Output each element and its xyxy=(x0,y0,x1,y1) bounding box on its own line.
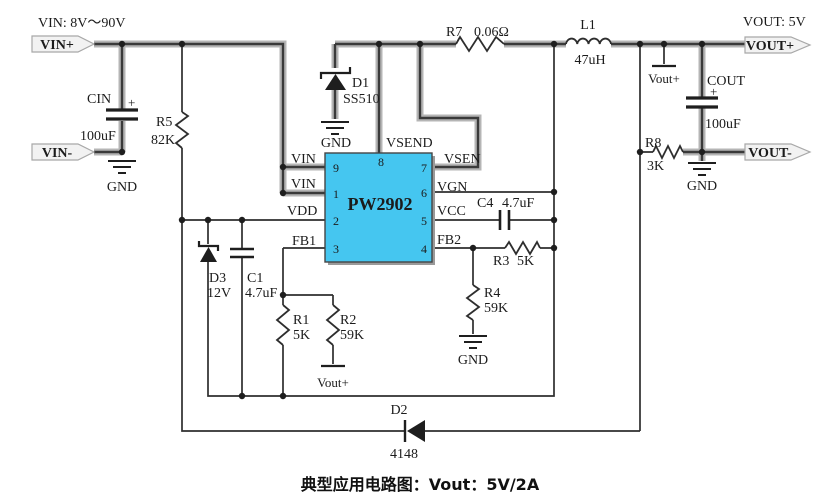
cout-value: 100uF xyxy=(705,117,741,132)
r8-ref: R8 xyxy=(645,136,661,151)
pin2-label: VDD xyxy=(287,204,317,219)
cin-plus-sign: + xyxy=(128,95,135,110)
ic-pin4-number: 4 xyxy=(421,242,427,256)
schematic-page: PW2902 9 1 2 3 8 7 6 5 4 VIN VIN VDD FB1… xyxy=(0,0,840,500)
diode-d3-zener xyxy=(199,241,218,262)
d1-value: SS510 xyxy=(343,92,380,107)
vout-ref-top-label: Vout+ xyxy=(648,71,680,86)
resistor-r1 xyxy=(277,305,289,345)
r7-ref: R7 xyxy=(446,25,462,40)
d3-ref: D3 xyxy=(209,271,226,286)
ic-pin8-number: 8 xyxy=(378,155,384,169)
ic-pin3-number: 3 xyxy=(333,242,339,256)
cin-value: 100uF xyxy=(80,129,116,144)
vout-spec-text: VOUT: 5V xyxy=(743,15,806,30)
pin3-label: FB1 xyxy=(292,234,316,249)
pin6-label: VGN xyxy=(437,180,467,195)
vout-minus-label: VOUT- xyxy=(748,146,792,161)
resistor-r2 xyxy=(327,305,339,345)
capacitor-cin xyxy=(106,110,138,119)
vin-spec-text: VIN: 8V～90V xyxy=(38,16,126,31)
r5-value: 82K xyxy=(151,133,175,148)
ic-pin6-number: 6 xyxy=(421,186,427,200)
gnd-symbol-d1 xyxy=(321,122,349,134)
circuit-schematic: PW2902 9 1 2 3 8 7 6 5 4 VIN VIN VDD FB1… xyxy=(0,0,840,500)
resistor-r3 xyxy=(505,242,540,254)
d1-ref: D1 xyxy=(352,76,369,91)
gnd-label-d1: GND xyxy=(321,136,351,151)
cin-ref: CIN xyxy=(87,92,111,107)
vin-minus-label: VIN- xyxy=(42,146,73,161)
vout-plus-label: VOUT+ xyxy=(746,39,794,54)
ic-pin9-number: 9 xyxy=(333,161,339,175)
r5-ref: R5 xyxy=(156,115,172,130)
ic-pw2902: PW2902 9 1 2 3 8 7 6 5 4 xyxy=(325,153,435,265)
pin1-label: VIN xyxy=(291,177,316,192)
gnd-label-r4: GND xyxy=(458,353,488,368)
ic-pin7-number: 7 xyxy=(421,161,427,175)
l1-ref: L1 xyxy=(580,18,596,33)
gnd-symbol-r4 xyxy=(459,336,487,348)
capacitor-c1 xyxy=(230,249,254,257)
resistor-r4 xyxy=(467,285,479,320)
capacitor-c4 xyxy=(500,210,509,230)
gnd-symbol-cout xyxy=(688,163,716,175)
schematic-caption: 典型应用电路图：Vout：5V/2A xyxy=(0,471,840,495)
c4-value: 4.7uF xyxy=(502,196,535,211)
cout-plus-sign: + xyxy=(710,84,717,99)
c4-ref: C4 xyxy=(477,196,493,211)
r8-value: 3K xyxy=(647,159,664,174)
pin8-label: VSEND xyxy=(386,136,433,151)
r4-ref: R4 xyxy=(484,286,500,301)
d2-value: 4148 xyxy=(390,447,418,462)
ic-pin2-number: 2 xyxy=(333,214,339,228)
l1-value: 47uH xyxy=(574,53,605,68)
r3-value: 5K xyxy=(517,254,534,269)
d3-value: 12V xyxy=(207,286,231,301)
gnd-label-cin: GND xyxy=(107,180,137,195)
r2-ref: R2 xyxy=(340,313,356,328)
r4-value: 59K xyxy=(484,301,508,316)
r3-ref: R3 xyxy=(493,254,509,269)
pin5-label: VCC xyxy=(437,204,466,219)
c1-ref: C1 xyxy=(247,271,263,286)
capacitor-cout xyxy=(686,98,718,107)
diode-d1-schottky xyxy=(321,67,350,90)
pin7-label: VSEN xyxy=(444,152,481,167)
ic-pin1-number: 1 xyxy=(333,187,339,201)
d2-ref: D2 xyxy=(390,403,407,418)
ic-pin5-number: 5 xyxy=(421,214,427,228)
vout-ref-bottom-label: Vout+ xyxy=(317,375,349,390)
vin-plus-label: VIN+ xyxy=(40,38,74,53)
r7-value: 0.06Ω xyxy=(474,25,509,40)
r2-value: 59K xyxy=(340,328,364,343)
ic-part-label: PW2902 xyxy=(348,194,413,214)
r1-ref: R1 xyxy=(293,313,309,328)
r1-value: 5K xyxy=(293,328,310,343)
c1-value: 4.7uF xyxy=(245,286,278,301)
resistor-r5 xyxy=(176,112,188,148)
gnd-symbol-cin xyxy=(108,161,136,173)
inductor-l1 xyxy=(566,39,611,44)
gnd-label-cout: GND xyxy=(687,179,717,194)
pin4-label: FB2 xyxy=(437,233,461,248)
pin9-label: VIN xyxy=(291,152,316,167)
diode-d2 xyxy=(405,420,425,442)
